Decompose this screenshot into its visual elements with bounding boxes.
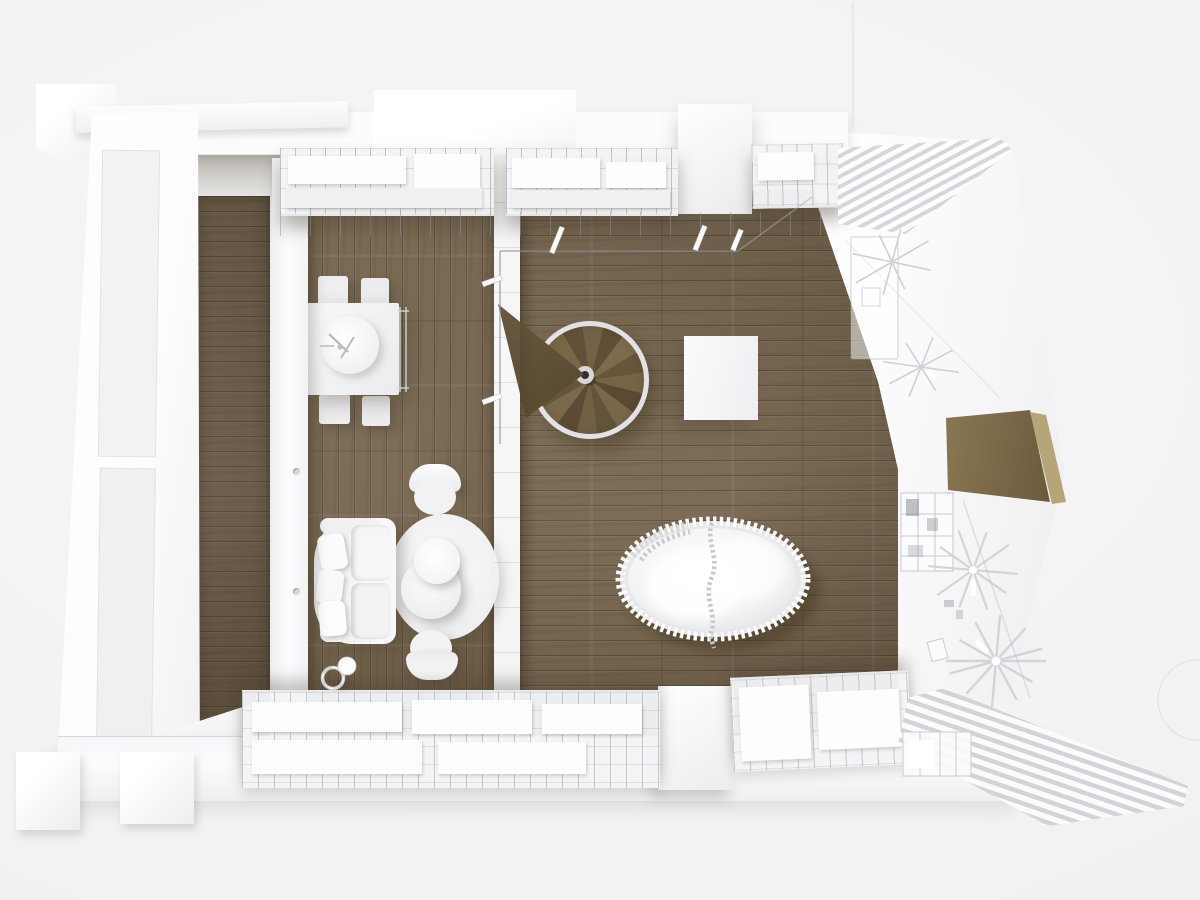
dining-stool xyxy=(362,396,390,426)
wall-pier-bottom xyxy=(658,686,734,790)
storage-box xyxy=(512,190,670,208)
storage-box xyxy=(606,162,666,188)
storage-box xyxy=(758,152,814,181)
armchair-seat xyxy=(414,479,456,515)
floorplan-render xyxy=(0,0,1200,900)
corner-block-sw xyxy=(120,752,194,824)
shelf-unit-bottom xyxy=(730,670,912,772)
dining-stool xyxy=(318,276,348,306)
sofa-seat-cushion xyxy=(351,583,391,639)
storage-box xyxy=(817,689,901,751)
left-wall-door-panel xyxy=(96,468,156,739)
storage-box xyxy=(412,700,532,734)
storage-box xyxy=(414,154,480,188)
partition-button xyxy=(293,588,300,595)
side-table xyxy=(684,336,758,420)
storage-box xyxy=(542,704,642,734)
shelf-unit-top xyxy=(751,143,844,209)
storage-box xyxy=(512,158,600,188)
storage-box xyxy=(738,685,811,762)
partition-wall xyxy=(272,158,308,738)
divider-wall xyxy=(494,158,520,738)
storage-box xyxy=(252,740,422,774)
storage-box xyxy=(288,156,406,184)
dining-stool xyxy=(319,394,350,424)
sofa-pillow xyxy=(318,600,348,637)
corridor-floor xyxy=(193,196,270,738)
storage-box xyxy=(252,702,402,732)
corner-block-sw xyxy=(16,752,80,830)
table-centerpiece xyxy=(321,316,379,374)
shelf-unit-top xyxy=(506,148,678,216)
wall-pier-top xyxy=(678,104,752,214)
sofa-seat-cushion xyxy=(351,525,391,581)
shelf-hanging-rods xyxy=(280,212,840,236)
shelf-unit-top xyxy=(280,148,494,216)
partition-button xyxy=(293,468,300,475)
left-wall-door-panel xyxy=(98,150,160,458)
coffee-table-small xyxy=(414,538,460,584)
storage-box xyxy=(286,188,482,208)
shelf-unit-bottom xyxy=(242,690,660,788)
living-floor xyxy=(306,190,494,738)
storage-box xyxy=(438,742,586,774)
